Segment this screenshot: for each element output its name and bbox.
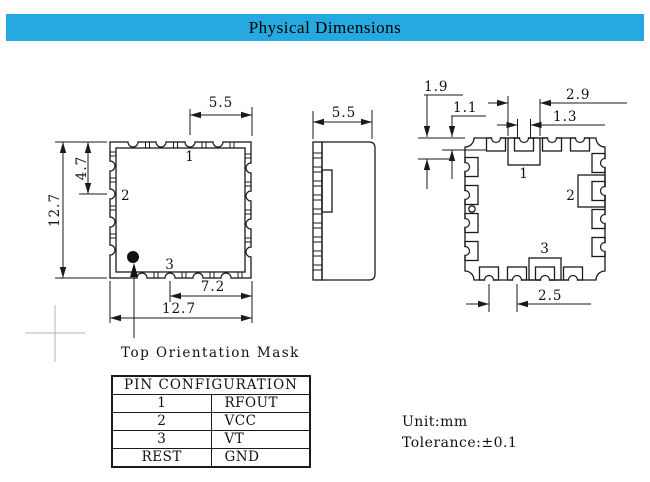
dim-pin2-offset-label: 4.7 — [74, 156, 90, 180]
crosshair-mark — [25, 305, 85, 362]
pin1-label-top: 1 — [185, 149, 195, 165]
dim-pin1-pad-label: 2.9 — [566, 87, 590, 103]
table-row: REST GND — [112, 449, 310, 468]
orientation-mask-annotation: Top Orientation Mask — [121, 345, 300, 361]
pin-number: REST — [112, 449, 211, 468]
pin-number: 2 — [112, 413, 211, 431]
pin1-label-bottom: 1 — [519, 166, 529, 182]
table-header-row: PIN CONFIGURATION — [112, 376, 310, 395]
top-view-drawing: 5.5 4.7 12.7 7.2 12.7 1 2 3 Top Orientat… — [47, 95, 300, 361]
dim-top-width-label: 5.5 — [209, 95, 233, 111]
bottom-view-drawing: 1.9 1.1 2.9 1.3 2.5 1 2 3 — [418, 79, 627, 312]
unit-note: Unit:mm — [402, 412, 517, 433]
dimension-drawings: 5.5 4.7 12.7 7.2 12.7 1 2 3 Top Orientat… — [0, 0, 650, 482]
pin3-label-bottom: 3 — [540, 241, 550, 257]
datasheet-page: Physical Dimensions — [0, 0, 650, 482]
dim-depth-label: 5.5 — [332, 105, 356, 121]
pin-signal: RFOUT — [211, 395, 310, 413]
pin3-label-top: 3 — [165, 257, 175, 273]
pin-signal: VT — [211, 431, 310, 449]
table-row: 3 VT — [112, 431, 310, 449]
orientation-mask-dot — [127, 251, 139, 263]
pin-signal: GND — [211, 449, 310, 468]
dim-pad-pitch-label: 2.5 — [538, 288, 562, 304]
pin2-label-bottom: 2 — [566, 188, 576, 204]
pin-number: 3 — [112, 431, 211, 449]
pin-configuration-table: PIN CONFIGURATION 1 RFOUT 2 VCC 3 VT RES… — [111, 375, 311, 468]
pin2-label-top: 2 — [121, 188, 131, 204]
dim-edge-pad-label: 1.1 — [453, 100, 477, 116]
pin-table-title: PIN CONFIGURATION — [112, 376, 310, 395]
pin1-indicator-circle — [469, 206, 475, 212]
drawing-notes: Unit:mm Tolerance:±0.1 — [402, 412, 517, 454]
tolerance-note: Tolerance:±0.1 — [402, 433, 517, 454]
dim-pin3-to-edge-label: 7.2 — [201, 279, 225, 295]
dim-corner-pad-label: 1.9 — [424, 79, 448, 95]
table-row: 2 VCC — [112, 413, 310, 431]
dim-height-label: 12.7 — [47, 193, 63, 227]
side-view-drawing: 5.5 — [313, 105, 375, 280]
pin-signal: VCC — [211, 413, 310, 431]
pin-number: 1 — [112, 395, 211, 413]
dim-hole-label: 1.3 — [553, 109, 577, 125]
orientation-mask-leader — [130, 263, 138, 338]
table-row: 1 RFOUT — [112, 395, 310, 413]
dim-width-label: 12.7 — [162, 301, 196, 317]
